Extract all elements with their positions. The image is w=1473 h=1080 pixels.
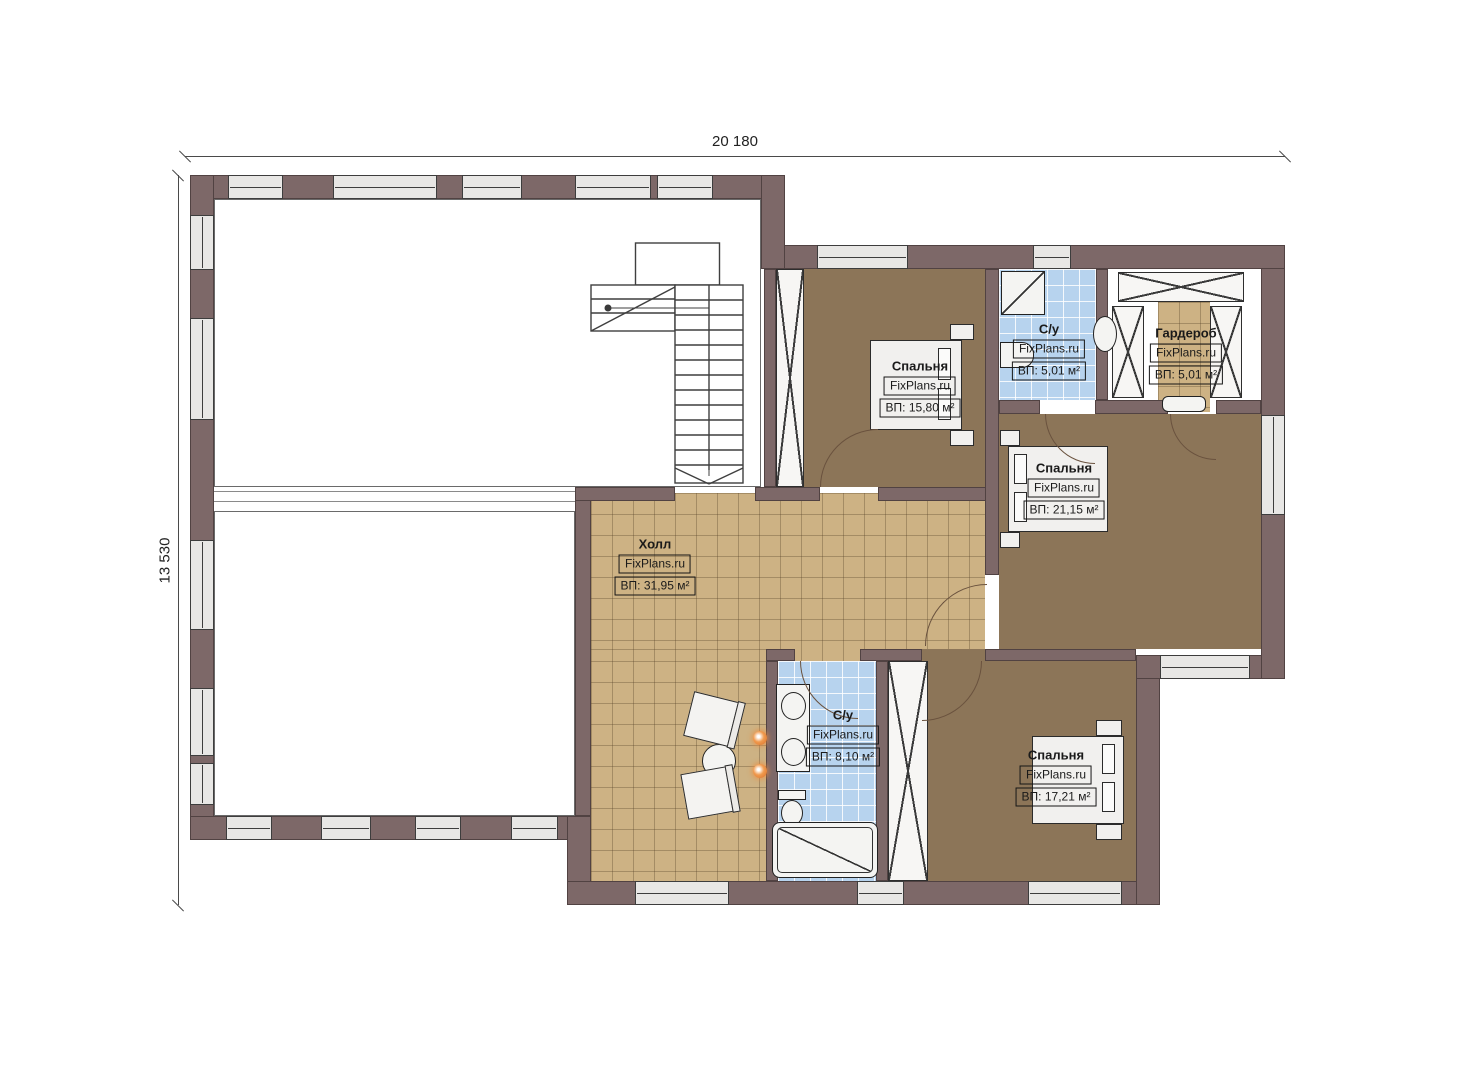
room-void-lower xyxy=(214,511,575,816)
room-label-bathroom-bottom: С/у FixPlans.ru ВП: 8,10 м² xyxy=(806,708,880,767)
room-name: Холл xyxy=(639,537,672,552)
toilet-tank xyxy=(778,790,806,800)
bathtub xyxy=(772,822,878,878)
interior-wall xyxy=(575,487,675,501)
room-name: Спальня xyxy=(892,359,948,374)
window xyxy=(190,318,214,420)
dimension-line-left xyxy=(178,175,179,905)
interior-wall xyxy=(766,649,795,661)
room-name: С/у xyxy=(1039,322,1059,337)
interior-wall xyxy=(764,269,776,487)
room-name: Спальня xyxy=(1028,748,1084,763)
nightstand xyxy=(1000,532,1020,548)
sink xyxy=(781,738,806,766)
exterior-wall xyxy=(761,175,785,269)
armchair xyxy=(680,766,733,819)
window xyxy=(511,816,558,840)
window xyxy=(226,816,272,840)
interior-wall xyxy=(985,269,999,575)
room-label-wardrobe: Гардероб FixPlans.ru ВП: 5,01 м² xyxy=(1149,326,1223,385)
window xyxy=(635,881,729,905)
room-area: ВП: 31,95 м² xyxy=(615,577,696,596)
bathtub-inner xyxy=(777,827,873,873)
closet xyxy=(776,269,804,487)
interior-wall xyxy=(755,487,820,501)
nightstand xyxy=(1096,720,1122,736)
wardrobe-closet xyxy=(1112,306,1144,398)
room-brand: FixPlans.ru xyxy=(884,377,956,396)
window xyxy=(575,175,651,199)
wall-lamp xyxy=(753,764,767,778)
nightstand xyxy=(1096,824,1122,840)
sink xyxy=(781,692,806,720)
interior-wall xyxy=(575,487,591,816)
room-name: Гардероб xyxy=(1155,326,1216,341)
room-label-bedroom-top: Спальня FixPlans.ru ВП: 15,80 м² xyxy=(880,359,961,418)
nightstand xyxy=(1000,430,1020,446)
dimension-line-top xyxy=(185,156,1285,157)
window xyxy=(228,175,283,199)
room-name: С/у xyxy=(833,708,853,723)
wardrobe-closet xyxy=(1118,272,1244,302)
room-label-bedroom-right: Спальня FixPlans.ru ВП: 21,15 м² xyxy=(1024,461,1105,520)
interior-wall xyxy=(985,649,1136,661)
room-brand: FixPlans.ru xyxy=(1013,340,1085,359)
nightstand xyxy=(950,430,974,446)
dimension-left-label: 13 530 xyxy=(157,506,174,616)
window xyxy=(857,881,904,905)
room-area: ВП: 17,21 м² xyxy=(1016,788,1097,807)
room-label-hall: Холл FixPlans.ru ВП: 31,95 м² xyxy=(615,537,696,596)
exterior-wall xyxy=(1136,655,1160,905)
room-brand: FixPlans.ru xyxy=(1028,479,1100,498)
room-brand: FixPlans.ru xyxy=(1150,344,1222,363)
door-mat xyxy=(1162,396,1206,412)
window xyxy=(657,175,713,199)
door-leaf xyxy=(1093,316,1117,352)
window xyxy=(462,175,522,199)
room-brand: FixPlans.ru xyxy=(807,726,879,745)
window xyxy=(817,245,908,269)
interior-wall xyxy=(1095,400,1168,414)
room-brand: FixPlans.ru xyxy=(1020,766,1092,785)
window xyxy=(333,175,437,199)
nightstand xyxy=(950,324,974,340)
window xyxy=(190,215,214,270)
vestibule-floor xyxy=(922,649,985,661)
sitting-area-floor xyxy=(591,661,766,881)
room-name: Спальня xyxy=(1036,461,1092,476)
window xyxy=(1033,245,1071,269)
window xyxy=(415,816,461,840)
window xyxy=(190,540,214,630)
floor-plan: 20 180 13 530 xyxy=(0,0,1473,1080)
open-to-below-line xyxy=(214,491,575,502)
room-area: ВП: 21,15 м² xyxy=(1024,501,1105,520)
room-brand: FixPlans.ru xyxy=(619,555,691,574)
room-label-bedroom-bottom: Спальня FixPlans.ru ВП: 17,21 м² xyxy=(1016,748,1097,807)
window xyxy=(1160,655,1250,679)
pillow xyxy=(1102,744,1115,774)
room-area: ВП: 5,01 м² xyxy=(1149,366,1223,385)
window xyxy=(321,816,371,840)
interior-wall xyxy=(999,400,1040,414)
dimension-top-label: 20 180 xyxy=(635,133,835,150)
interior-wall xyxy=(878,487,999,501)
room-area: ВП: 15,80 м² xyxy=(880,399,961,418)
wall-lamp xyxy=(753,731,767,745)
room-label-bathroom-top: С/у FixPlans.ru ВП: 5,01 м² xyxy=(1012,322,1086,381)
window xyxy=(190,763,214,805)
staircase xyxy=(588,238,763,490)
window xyxy=(1261,415,1285,515)
hall-floor xyxy=(591,649,766,661)
room-area: ВП: 5,01 м² xyxy=(1012,362,1086,381)
room-area: ВП: 8,10 м² xyxy=(806,748,880,767)
shower-cabin xyxy=(1001,271,1045,315)
window xyxy=(190,688,214,756)
window xyxy=(1028,881,1122,905)
pillow xyxy=(1102,782,1115,812)
interior-wall xyxy=(860,649,922,661)
interior-wall xyxy=(1216,400,1261,414)
